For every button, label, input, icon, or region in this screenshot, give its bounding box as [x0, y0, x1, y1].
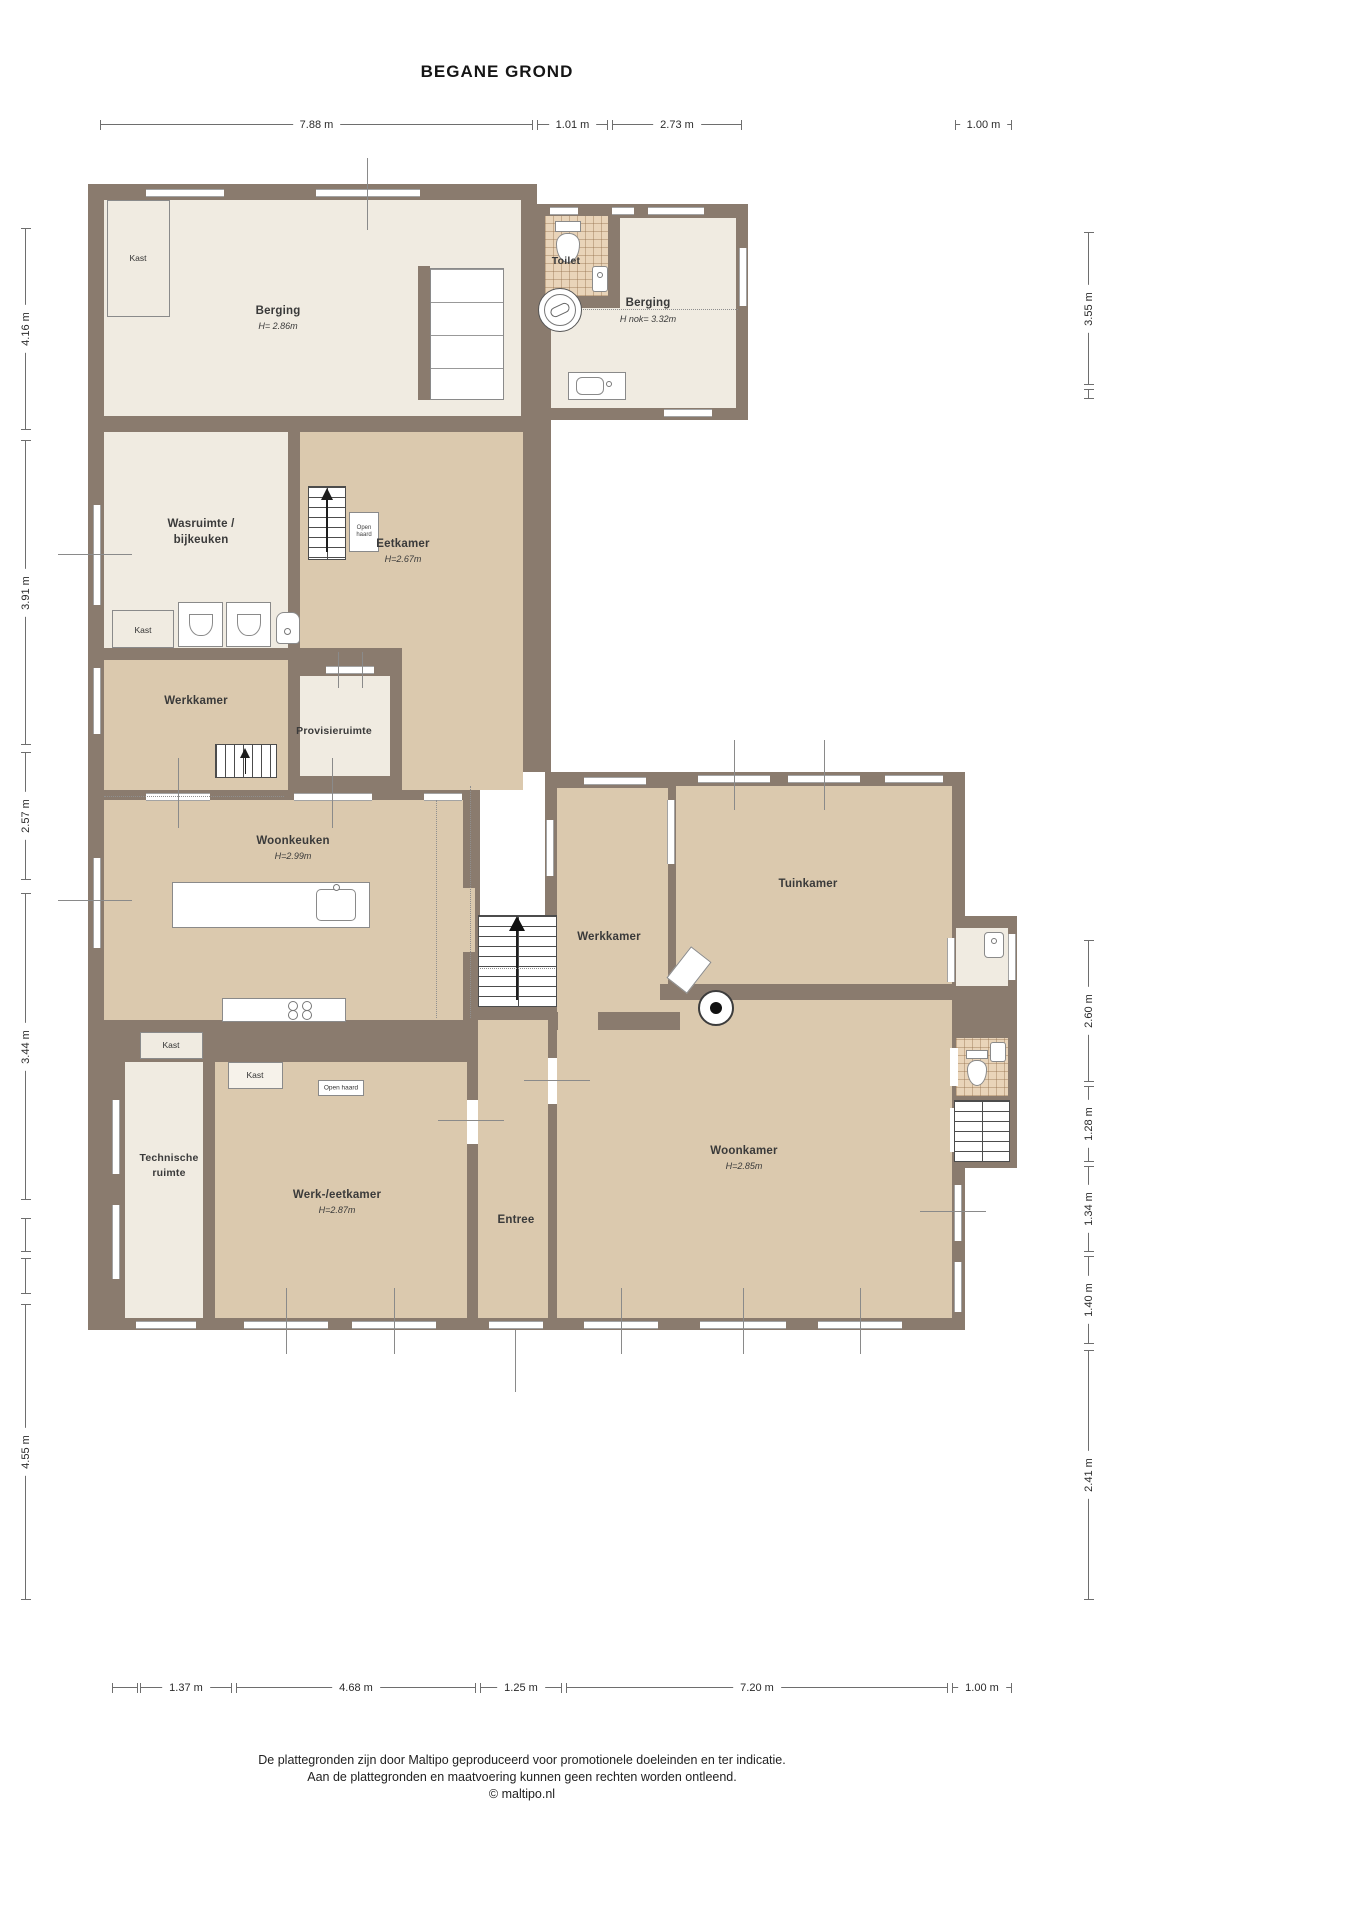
dim-left-1: 4.16 m — [25, 228, 26, 430]
room-label-entree: Entree — [498, 1214, 535, 1226]
window-icon — [424, 793, 462, 801]
wall-woonkeuken-hall-upper — [463, 800, 475, 888]
faucet-icon — [333, 884, 340, 891]
window-axis-tick — [58, 900, 132, 901]
entrance-door-axis-tick — [515, 1330, 516, 1392]
window-axis-tick — [367, 158, 368, 230]
wood-stove-icon — [698, 990, 734, 1026]
ceiling-dotted-line — [104, 796, 284, 797]
sink-icon — [576, 377, 604, 395]
door-werkkamer-woonkamer — [558, 1012, 598, 1030]
footer-line-3: © maltipo.nl — [258, 1786, 785, 1803]
window-axis-tick — [824, 740, 825, 810]
window-icon — [885, 775, 943, 783]
sink-icon — [316, 889, 356, 921]
room-height-woonkamer: H=2.85m — [726, 1161, 763, 1171]
window-axis-tick — [734, 740, 735, 810]
dim-label: 7.88 m — [293, 119, 341, 131]
dim-label: 1.37 m — [162, 1682, 210, 1694]
dim-right-4: 1.34 m — [1088, 1166, 1089, 1252]
dim-label: 4.16 m — [20, 305, 32, 353]
dim-label: 2.73 m — [653, 119, 701, 131]
footer-disclaimer: De plattegronden zijn door Maltipo gepro… — [258, 1752, 785, 1803]
dim-label: 1.00 m — [960, 119, 1008, 131]
door-opening-icon — [947, 938, 955, 982]
dim-label: 2.41 m — [1083, 1451, 1095, 1499]
door-opening-icon — [950, 1048, 958, 1086]
fireplace-label: Open haard — [324, 1085, 358, 1092]
window-icon — [93, 858, 101, 948]
dim-left-5: 4.55 m — [25, 1304, 26, 1600]
room-height-berging-right: H nok= 3.32m — [620, 314, 676, 324]
room-technische-floor — [125, 1062, 203, 1318]
dim-label: 4.68 m — [332, 1682, 380, 1694]
window-icon — [93, 505, 101, 605]
dim-label: 2.57 m — [20, 792, 32, 840]
stairs-arrow-icon — [326, 500, 328, 552]
window-axis-tick — [332, 758, 333, 828]
closet-label: Kast — [246, 1070, 263, 1080]
room-label-toilet: Toilet — [552, 255, 580, 267]
door-axis-tick — [524, 1080, 590, 1081]
stove-burners-icon — [288, 1010, 298, 1020]
dim-left-2: 3.91 m — [25, 440, 26, 745]
window-icon — [546, 820, 554, 876]
window-axis-tick — [920, 1211, 986, 1212]
dim-label: 3.91 m — [20, 569, 32, 617]
dim-left-tick-1 — [25, 1218, 26, 1252]
faucet-icon — [991, 938, 997, 944]
window-icon — [326, 666, 374, 674]
dim-left-3: 2.57 m — [25, 752, 26, 880]
window-axis-tick — [860, 1288, 861, 1354]
dim-left-4: 3.44 m — [25, 893, 26, 1200]
dim-bottom-2: 4.68 m — [236, 1687, 476, 1688]
room-height-werk-eetkamer: H=2.87m — [319, 1205, 356, 1215]
stairs-arrow-icon — [245, 758, 247, 774]
wall-toilet-right — [608, 216, 620, 308]
window-icon — [954, 1262, 962, 1312]
door-opening-icon — [550, 207, 578, 215]
dim-top-4: 1.00 m — [955, 124, 1012, 125]
dim-right-6: 2.41 m — [1088, 1350, 1089, 1600]
page-title: BEGANE GROND — [421, 62, 574, 82]
wall-woonkeuken-hall-lower — [463, 952, 475, 1020]
window-icon — [316, 189, 420, 197]
stove-burners-icon — [302, 1010, 312, 1020]
window-icon — [112, 1100, 120, 1174]
window-axis-tick — [394, 1288, 395, 1354]
dim-right-5: 1.40 m — [1088, 1256, 1089, 1344]
floorplan-page: BEGANE GROND — [0, 0, 1358, 1920]
dim-label: 4.55 m — [20, 1428, 32, 1476]
window-icon — [664, 409, 712, 417]
stairs-cut-line — [480, 968, 555, 969]
kitchen-counter-icon — [222, 998, 346, 1022]
room-label-wasruimte: Wasruimte / — [168, 518, 235, 530]
window-axis-tick — [621, 1288, 622, 1354]
stairs-icon — [954, 1100, 1010, 1162]
stairs-arrow-icon — [509, 916, 525, 931]
room-label-technische: Technische — [140, 1152, 199, 1164]
room-height-eetkamer: H=2.67m — [385, 554, 422, 564]
dim-bottom-4: 7.20 m — [566, 1687, 948, 1688]
dim-right-tick — [1088, 389, 1089, 399]
dim-label: 1.25 m — [497, 1682, 545, 1694]
window-axis-tick — [362, 652, 363, 688]
outside-notch — [480, 772, 545, 915]
dim-label: 3.55 m — [1083, 285, 1095, 333]
dim-label: 1.00 m — [958, 1682, 1006, 1694]
stairs-arrow-icon — [240, 748, 250, 758]
window-icon — [112, 1205, 120, 1279]
room-werkkamer-mid-floor — [557, 788, 668, 1012]
dim-label: 1.28 m — [1083, 1100, 1095, 1148]
window-axis-tick — [338, 652, 339, 688]
dim-right-3: 1.28 m — [1088, 1086, 1089, 1162]
room-label-woonkeuken: Woonkeuken — [256, 835, 329, 847]
footer-line-2: Aan de plattegronden en maatvoering kunn… — [258, 1769, 785, 1786]
window-icon — [584, 777, 646, 785]
footer-line-1: De plattegronden zijn door Maltipo gepro… — [258, 1752, 785, 1769]
window-icon — [136, 1321, 196, 1329]
dim-label: 1.34 m — [1083, 1185, 1095, 1233]
window-icon — [1008, 934, 1016, 980]
stairs-arrow-icon — [321, 488, 333, 500]
closet-label: Kast — [134, 625, 151, 635]
room-label-eetkamer: Eetkamer — [376, 538, 429, 550]
room-label-woonkamer: Woonkamer — [710, 1145, 777, 1157]
dim-label: 3.44 m — [20, 1023, 32, 1071]
dim-label: 2.60 m — [1083, 987, 1095, 1035]
entrance-door-icon — [489, 1321, 543, 1329]
window-axis-tick — [58, 554, 132, 555]
door-opening-icon — [548, 1058, 557, 1104]
window-axis-tick — [178, 758, 179, 828]
window-icon — [739, 248, 747, 306]
door-axis-tick — [438, 1120, 504, 1121]
window-axis-tick — [743, 1288, 744, 1354]
dim-top-1: 7.88 m — [100, 124, 533, 125]
door-opening-icon — [612, 207, 634, 215]
dim-left-tick-2 — [25, 1258, 26, 1294]
room-label-provisieruimte: Provisieruimte — [296, 725, 372, 737]
ridge-dotted-line — [580, 309, 738, 310]
dim-label: 1.40 m — [1083, 1276, 1095, 1324]
room-label-werkkamer-mid: Werkkamer — [577, 931, 641, 943]
shelf-icon — [430, 268, 504, 400]
faucet-icon — [606, 381, 612, 387]
toilet-icon — [555, 221, 581, 232]
window-axis-tick — [286, 1288, 287, 1354]
room-woonkamer-floor — [557, 998, 952, 1318]
faucet-icon — [597, 272, 603, 278]
fireplace-box: Openhaard — [349, 512, 379, 552]
door-opening-icon — [667, 800, 675, 864]
door-opening-icon — [467, 1100, 478, 1144]
window-icon — [146, 189, 224, 197]
dim-right-1: 3.55 m — [1088, 232, 1089, 385]
closet-label: Kast — [129, 253, 146, 263]
room-label-berging-right: Berging — [626, 297, 671, 309]
dim-top-2: 1.01 m — [537, 124, 608, 125]
room-label-tuinkamer: Tuinkamer — [778, 878, 837, 890]
dim-right-2: 2.60 m — [1088, 940, 1089, 1082]
dim-bottom-5: 1.00 m — [952, 1687, 1012, 1688]
room-label-technische-2: ruimte — [152, 1167, 185, 1179]
faucet-icon — [284, 628, 291, 635]
room-label-wasruimte-2: bijkeuken — [174, 534, 229, 546]
washing-machine-icon — [538, 288, 582, 332]
dim-label: 7.20 m — [733, 1682, 781, 1694]
room-height-woonkeuken: H=2.99m — [275, 851, 312, 861]
fireplace-label: Open — [357, 525, 372, 531]
room-height-berging-left: H= 2.86m — [258, 321, 297, 331]
window-icon — [93, 668, 101, 734]
room-entree-floor — [478, 1020, 548, 1318]
dim-bottom-ticks — [112, 1687, 138, 1688]
sink-icon — [592, 266, 608, 292]
room-label-werk-eetkamer: Werk-/eetkamer — [293, 1189, 381, 1201]
window-icon — [294, 793, 372, 801]
ceiling-dotted-line — [436, 800, 437, 1018]
window-icon — [954, 1185, 962, 1241]
dim-label: 1.01 m — [549, 119, 597, 131]
dim-bottom-1: 1.37 m — [140, 1687, 232, 1688]
dim-bottom-3: 1.25 m — [480, 1687, 562, 1688]
window-icon — [648, 207, 704, 215]
dim-top-3: 2.73 m — [612, 124, 742, 125]
closet-label: Kast — [162, 1040, 179, 1050]
room-label-werkkamer-left: Werkkamer — [164, 695, 228, 707]
fireplace-label: haard — [356, 532, 371, 538]
room-label-berging-left: Berging — [256, 305, 301, 317]
wall-berging-shelf — [418, 266, 430, 400]
toilet-icon — [966, 1050, 988, 1059]
sink-icon — [984, 932, 1004, 958]
sink-icon — [990, 1042, 1006, 1062]
ceiling-dotted-line — [470, 786, 471, 1018]
stairs-arrow-icon — [516, 930, 518, 1000]
